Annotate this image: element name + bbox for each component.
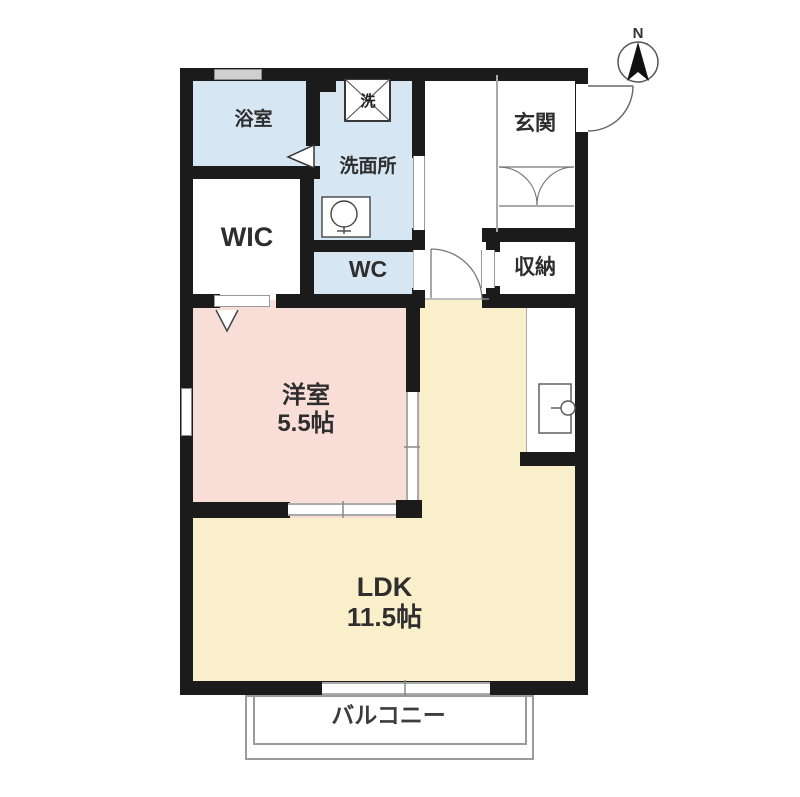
room-label-wic: WIC bbox=[192, 222, 302, 253]
entrance-step-line bbox=[496, 75, 498, 232]
ldk-size: 11.5帖 bbox=[192, 603, 577, 633]
floor-plan: N 洗 bbox=[0, 0, 800, 797]
wall-western-top-b bbox=[276, 294, 420, 308]
western-room-name: 洋室 bbox=[192, 382, 420, 410]
wall-washroom-wc bbox=[312, 240, 424, 252]
compass-north-label: N bbox=[633, 25, 644, 42]
room-label-balcony: バルコニー bbox=[245, 702, 532, 728]
wall-wic-right bbox=[300, 166, 314, 308]
western-bottom-slider bbox=[288, 503, 396, 516]
wall-kitchen-bottom bbox=[520, 452, 575, 466]
wall-corridor-left-upper bbox=[412, 68, 425, 158]
entrance-door-gap bbox=[576, 84, 588, 132]
ldk-balcony-slider bbox=[322, 682, 490, 695]
room-label-ldk: LDK 11.5帖 bbox=[192, 572, 577, 633]
wall-western-bottom bbox=[180, 502, 290, 518]
room-label-storage: 収納 bbox=[494, 256, 576, 280]
wall-western-right bbox=[406, 294, 420, 392]
bath-top-window bbox=[214, 69, 262, 80]
room-label-western-room: 洋室 5.5帖 bbox=[192, 382, 420, 437]
wall-washroom-step bbox=[320, 78, 336, 92]
compass-icon: N bbox=[618, 25, 658, 82]
room-label-bath: 浴室 bbox=[192, 109, 315, 131]
room-label-entrance: 玄関 bbox=[494, 112, 576, 136]
kitchen-alcove-area bbox=[526, 308, 576, 454]
western-left-window bbox=[181, 388, 192, 436]
entrance-door-swing-icon bbox=[588, 86, 633, 131]
wall-bath-wic bbox=[180, 166, 320, 179]
room-label-wc: WC bbox=[312, 256, 424, 282]
ldk-name: LDK bbox=[192, 572, 577, 603]
ldk-door-swing-icon bbox=[425, 249, 489, 300]
shoe-closet-doors-icon bbox=[499, 167, 574, 206]
wic-door-gap bbox=[214, 295, 270, 307]
wall-corridor-left-post1 bbox=[412, 228, 425, 252]
wall-western-corner-post bbox=[396, 500, 422, 518]
room-label-washroom: 洗面所 bbox=[312, 156, 424, 178]
wall-ldk-top-right bbox=[482, 294, 588, 308]
storage-door bbox=[481, 250, 495, 288]
western-room-size: 5.5帖 bbox=[192, 410, 420, 438]
